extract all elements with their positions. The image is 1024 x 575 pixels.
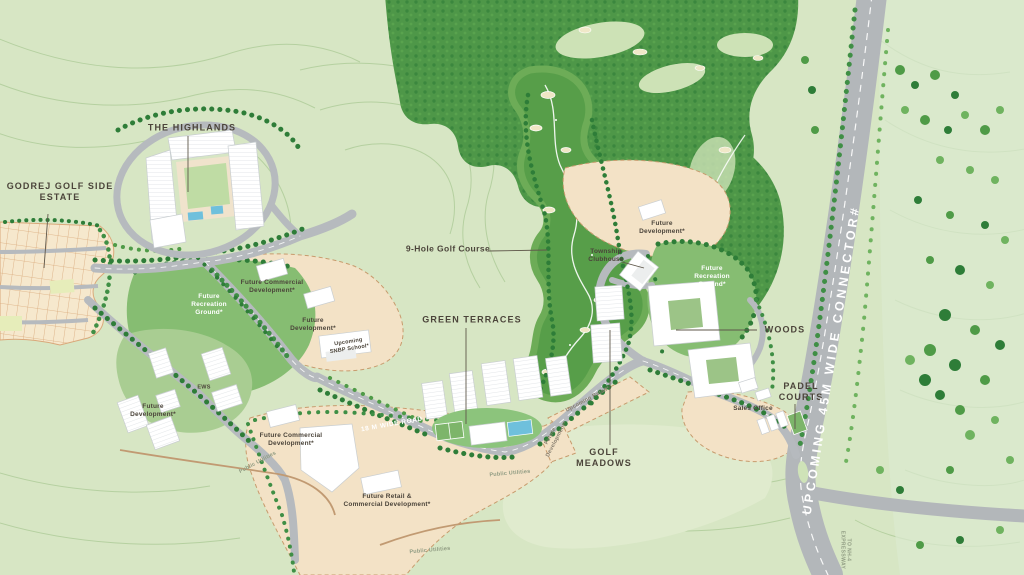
map-artwork: [0, 0, 1024, 575]
amenity-core: [432, 408, 542, 448]
masterplan-map: THE HIGHLANDS GODREJ GOLF SIDE ESTATE 9-…: [0, 0, 1024, 575]
